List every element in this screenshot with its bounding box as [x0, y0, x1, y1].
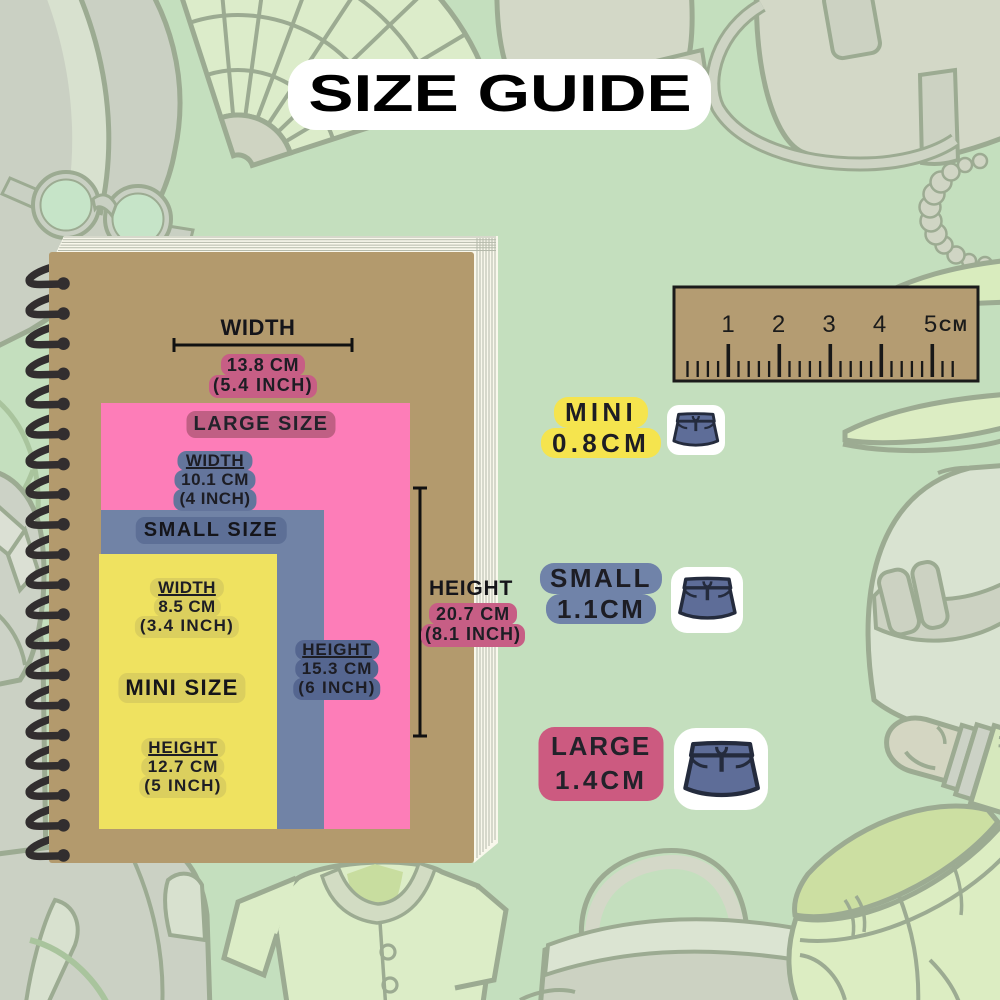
svg-text:2: 2 — [772, 311, 785, 338]
svg-text:4: 4 — [873, 311, 886, 338]
svg-text:CM: CM — [939, 316, 968, 335]
svg-text:1: 1 — [721, 311, 734, 338]
svg-text:5: 5 — [924, 311, 937, 338]
svg-text:3: 3 — [822, 311, 835, 338]
